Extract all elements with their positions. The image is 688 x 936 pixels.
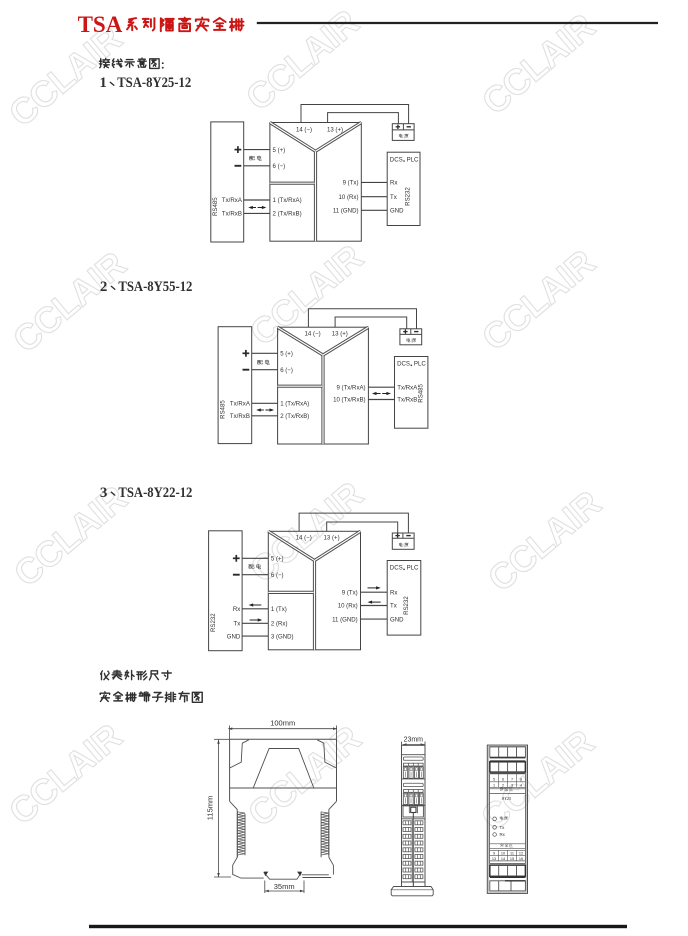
- svg-text:TSA-8Y22-12: TSA-8Y22-12: [118, 485, 192, 501]
- svg-text:12: 12: [519, 852, 523, 856]
- svg-text:35mm: 35mm: [274, 882, 295, 891]
- svg-text:14 (−): 14 (−): [296, 127, 312, 134]
- svg-text:Rx: Rx: [390, 180, 397, 187]
- svg-text:6 (−): 6 (−): [271, 572, 284, 579]
- svg-text:RS232: RS232: [210, 613, 217, 632]
- svg-text:2: 2: [502, 783, 504, 787]
- svg-text:Rx: Rx: [500, 832, 506, 837]
- svg-text:23mm: 23mm: [404, 736, 424, 743]
- svg-text:10 (Rx): 10 (Rx): [339, 194, 359, 201]
- svg-text:11 (GND): 11 (GND): [333, 208, 359, 215]
- svg-text:11 (GND): 11 (GND): [332, 616, 358, 623]
- svg-text:9: 9: [493, 852, 495, 856]
- svg-text:3: 3: [100, 485, 108, 501]
- svg-text:13 (+): 13 (+): [332, 331, 348, 338]
- svg-text:DCS: DCS: [397, 361, 410, 368]
- svg-text:Tx/RxB: Tx/RxB: [230, 413, 250, 420]
- svg-text:15: 15: [510, 857, 514, 861]
- svg-text:PLC: PLC: [407, 156, 419, 163]
- svg-text:Tx/RxA: Tx/RxA: [230, 401, 251, 408]
- svg-text:RS485: RS485: [212, 197, 219, 216]
- svg-text:Tx/RxA: Tx/RxA: [397, 384, 418, 391]
- svg-text:5 (+): 5 (+): [280, 351, 293, 358]
- svg-text:3 (GND): 3 (GND): [271, 633, 294, 640]
- svg-text:RS485: RS485: [219, 400, 226, 419]
- svg-text:8Y25: 8Y25: [502, 796, 512, 801]
- svg-text:100mm: 100mm: [270, 718, 295, 727]
- svg-text:Tx/RxA: Tx/RxA: [222, 197, 243, 204]
- svg-text:14 (−): 14 (−): [305, 331, 321, 338]
- svg-text:Rx: Rx: [233, 606, 240, 613]
- svg-text:Rx: Rx: [390, 589, 397, 596]
- svg-text:CCLAIR: CCLAIR: [474, 241, 603, 358]
- svg-text::: :: [161, 58, 165, 72]
- svg-text:3: 3: [511, 783, 513, 787]
- svg-text:7: 7: [511, 778, 513, 782]
- svg-text:2: 2: [100, 279, 108, 295]
- svg-text:DCS: DCS: [390, 565, 403, 572]
- svg-text:RS232: RS232: [403, 596, 410, 615]
- svg-text:10 (Tx/RxB): 10 (Tx/RxB): [333, 397, 366, 404]
- svg-text:10: 10: [501, 852, 505, 856]
- svg-text:CCLAIR: CCLAIR: [480, 482, 609, 599]
- svg-text:DCS: DCS: [390, 156, 403, 163]
- svg-text:6 (−): 6 (−): [280, 367, 293, 374]
- svg-text:6: 6: [502, 778, 504, 782]
- svg-text:RS485: RS485: [417, 383, 424, 402]
- svg-text:10 (Rx): 10 (Rx): [338, 603, 358, 610]
- svg-text:TSA-8Y25-12: TSA-8Y25-12: [117, 75, 191, 91]
- svg-text:GND: GND: [390, 616, 404, 623]
- svg-text:8: 8: [520, 778, 522, 782]
- svg-text:CCLAIR: CCLAIR: [240, 717, 369, 834]
- svg-text:9 (Tx): 9 (Tx): [342, 589, 358, 596]
- svg-text:1 (Tx/RxA): 1 (Tx/RxA): [280, 401, 309, 408]
- svg-text:TSA-8Y55-12: TSA-8Y55-12: [118, 279, 192, 295]
- svg-text:5 (+): 5 (+): [273, 147, 286, 154]
- svg-text:1: 1: [99, 75, 107, 91]
- svg-text:GND: GND: [390, 208, 404, 215]
- svg-text:5 (+): 5 (+): [271, 556, 284, 563]
- svg-text:GND: GND: [227, 633, 241, 640]
- svg-text:RS232: RS232: [404, 187, 411, 206]
- svg-text:Tx: Tx: [234, 621, 241, 628]
- svg-text:13 (+): 13 (+): [324, 535, 340, 542]
- svg-text:CCLAIR: CCLAIR: [242, 473, 371, 590]
- svg-text:1: 1: [493, 783, 495, 787]
- svg-text:115mm: 115mm: [206, 796, 215, 820]
- svg-text:13: 13: [492, 857, 496, 861]
- svg-text:16: 16: [519, 857, 523, 861]
- svg-text:2 (Tx/RxB): 2 (Tx/RxB): [273, 211, 302, 218]
- svg-text:2 (Tx/RxB): 2 (Tx/RxB): [280, 413, 309, 420]
- svg-text:Tx/RxB: Tx/RxB: [222, 211, 242, 218]
- svg-text:PLC: PLC: [407, 565, 419, 572]
- svg-text:Tx/RxB: Tx/RxB: [397, 397, 417, 404]
- svg-text:Tx: Tx: [500, 825, 506, 830]
- svg-text:TSA: TSA: [78, 12, 123, 37]
- svg-text:Tx: Tx: [390, 194, 397, 201]
- svg-text:14 (−): 14 (−): [296, 535, 312, 542]
- svg-text:13 (+): 13 (+): [327, 127, 343, 134]
- svg-text:11: 11: [510, 852, 514, 856]
- svg-text:CCLAIR: CCLAIR: [1, 715, 130, 832]
- svg-text:6 (−): 6 (−): [273, 163, 286, 170]
- svg-text:2 (Rx): 2 (Rx): [271, 621, 288, 628]
- svg-text:4: 4: [520, 783, 522, 787]
- svg-text:CCLAIR: CCLAIR: [238, 1, 367, 118]
- svg-text:PLC: PLC: [414, 361, 426, 368]
- svg-text:9 (Tx): 9 (Tx): [343, 180, 359, 187]
- svg-text:1 (Tx): 1 (Tx): [271, 606, 287, 613]
- svg-text:5: 5: [493, 778, 495, 782]
- svg-text:1 (Tx/RxA): 1 (Tx/RxA): [273, 197, 302, 204]
- svg-text:9 (Tx/RxA): 9 (Tx/RxA): [336, 384, 365, 391]
- svg-text:14: 14: [501, 857, 505, 861]
- svg-text:CCLAIR: CCLAIR: [5, 243, 134, 360]
- svg-text:Tx: Tx: [390, 603, 397, 610]
